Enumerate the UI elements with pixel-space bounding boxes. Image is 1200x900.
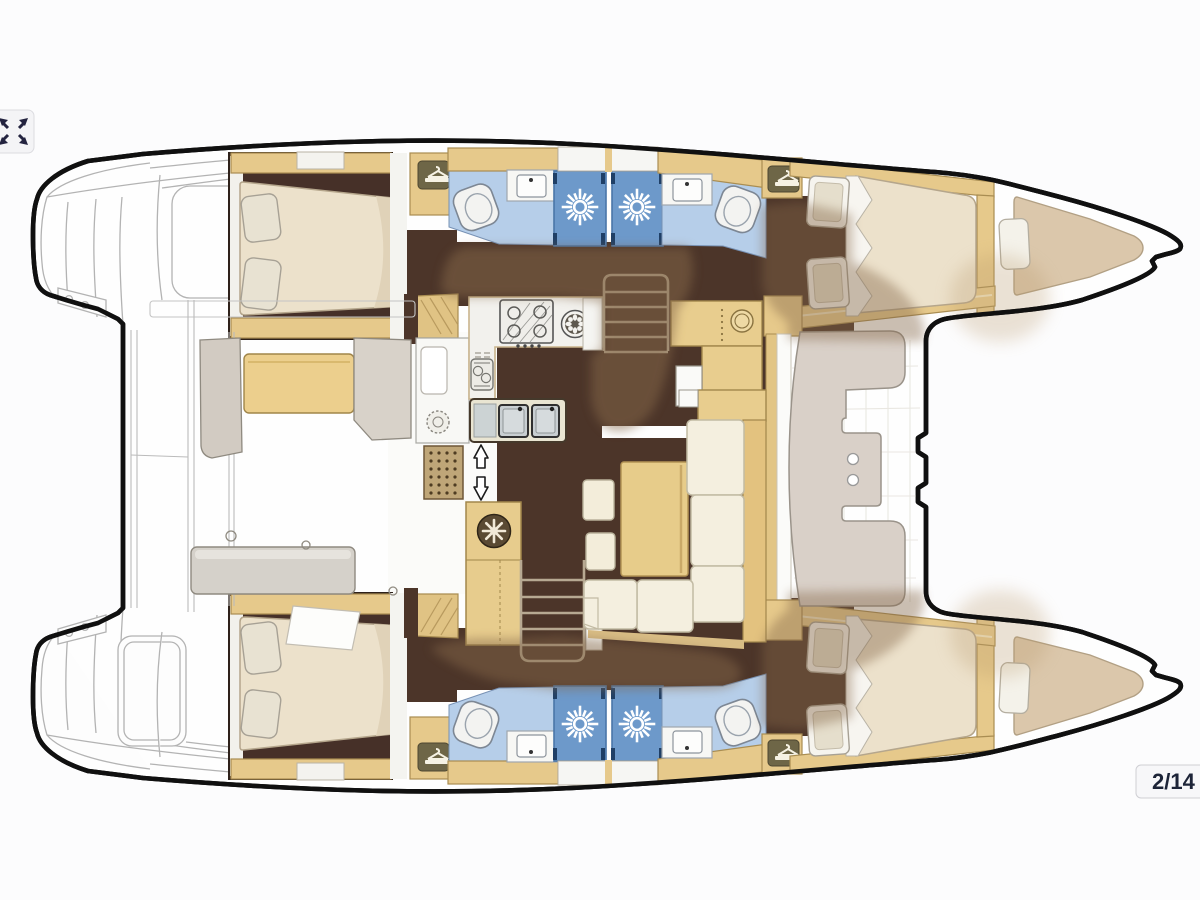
svg-text:2/14: 2/14 <box>1152 769 1196 794</box>
